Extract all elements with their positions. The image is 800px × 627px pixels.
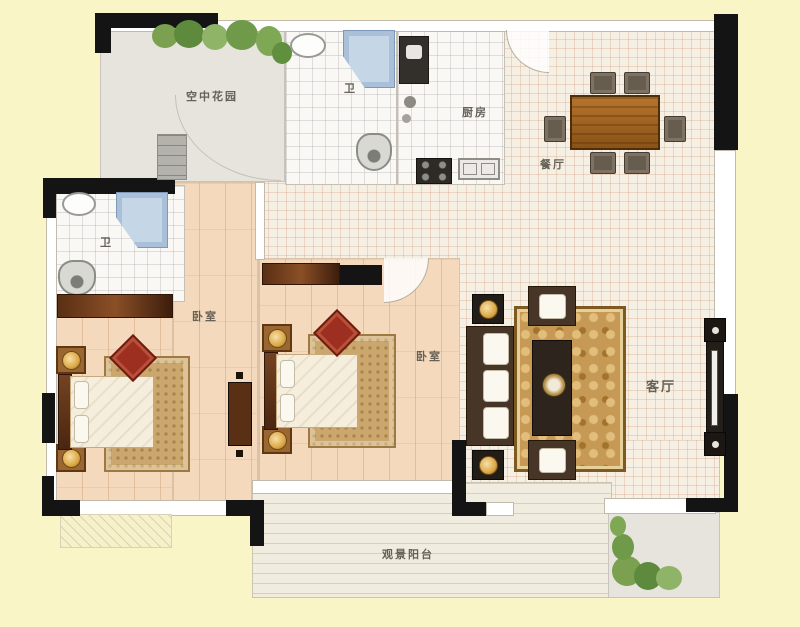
desk-knob (236, 372, 243, 379)
sofa (466, 326, 514, 446)
bush (202, 24, 228, 50)
label-sky-garden: 空中花园 (186, 88, 238, 104)
side-table (472, 294, 504, 324)
toilet-left-bath (58, 260, 96, 296)
speaker-dot (712, 441, 719, 448)
sofa-cushion (483, 370, 509, 402)
lamp (268, 431, 287, 450)
pillow (280, 360, 295, 388)
balcony-door (486, 502, 514, 516)
kitchen-counter (399, 36, 429, 84)
lamp (479, 456, 498, 475)
wall-segment (340, 265, 382, 285)
tv-screen (711, 350, 718, 426)
wall-segment (250, 500, 264, 546)
wall-strip-corridor (255, 182, 265, 260)
wall-segment (43, 178, 175, 194)
bush (174, 20, 204, 48)
speaker-dot (712, 327, 719, 334)
bush (612, 534, 634, 560)
sofa-cushion (483, 333, 509, 365)
stove (416, 158, 452, 184)
floor-plan-page: { "title": "apartment-floor-plan", "colo… (0, 0, 800, 627)
label-dining: 餐厅 (540, 156, 566, 172)
bush (656, 566, 682, 590)
label-bedroom-middle: 卧室 (416, 348, 442, 364)
bush (272, 42, 292, 64)
wall-segment (686, 498, 738, 512)
wall-segment (724, 394, 738, 512)
pillow (74, 381, 89, 409)
nightstand (56, 346, 86, 374)
lamp (62, 351, 81, 370)
desk-bedroom-left (228, 382, 252, 446)
side-table (472, 450, 504, 480)
speaker (704, 432, 726, 456)
label-kitchen: 厨房 (462, 104, 488, 120)
kitchen-appliance-dot (402, 114, 411, 123)
kitchen-appliance-dot (404, 96, 416, 108)
lamp (479, 300, 498, 319)
dining-chair (624, 152, 650, 174)
toilet-top-bath (356, 133, 392, 171)
desk-knob (236, 450, 243, 457)
wall-segment (452, 502, 490, 516)
wall-segment (95, 13, 111, 53)
table-bowl (542, 373, 566, 397)
nightstand (262, 324, 292, 352)
wall-segment (42, 393, 55, 443)
bush (610, 516, 626, 536)
lamp (62, 449, 81, 468)
dining-chair (590, 72, 616, 94)
room-balcony (252, 482, 612, 598)
dining-table (570, 95, 660, 150)
label-bedroom-left: 卧室 (192, 308, 218, 324)
armchair (528, 286, 576, 326)
nightstand (262, 426, 292, 454)
sink-top-bath (290, 33, 326, 58)
counter-sink-basin (406, 45, 422, 59)
armchair-cushion (539, 294, 566, 319)
armchair-cushion (539, 448, 566, 473)
dining-chair (624, 72, 650, 94)
kitchen-sink (458, 158, 500, 180)
label-bath-top: 卫 (344, 80, 357, 96)
wardrobe-bedroom-middle (262, 263, 340, 285)
label-living: 客厅 (646, 376, 676, 395)
bush (226, 20, 258, 50)
coffee-table (532, 340, 572, 436)
garden-cabinet (157, 134, 187, 180)
dining-chair (544, 116, 566, 142)
dining-chair (590, 152, 616, 174)
pillow (74, 415, 89, 443)
bed-bedroom-left (70, 376, 154, 448)
label-bath-left: 卫 (100, 234, 113, 250)
pillow (280, 394, 295, 422)
window-bedroom-middle-balcony (252, 480, 458, 494)
sofa-cushion (483, 407, 509, 439)
armchair (528, 440, 576, 480)
wall-segment (714, 14, 738, 150)
wall-segment (42, 500, 80, 516)
wardrobe-bedroom-left (57, 294, 173, 318)
label-balcony: 观景阳台 (382, 546, 434, 562)
dining-chair (664, 116, 686, 142)
speaker (704, 318, 726, 342)
bay-window-bedroom-left (60, 514, 172, 548)
bed-bedroom-middle (276, 354, 358, 428)
sink-left-bath (62, 192, 96, 216)
lamp (268, 329, 287, 348)
wall-segment (43, 178, 56, 218)
